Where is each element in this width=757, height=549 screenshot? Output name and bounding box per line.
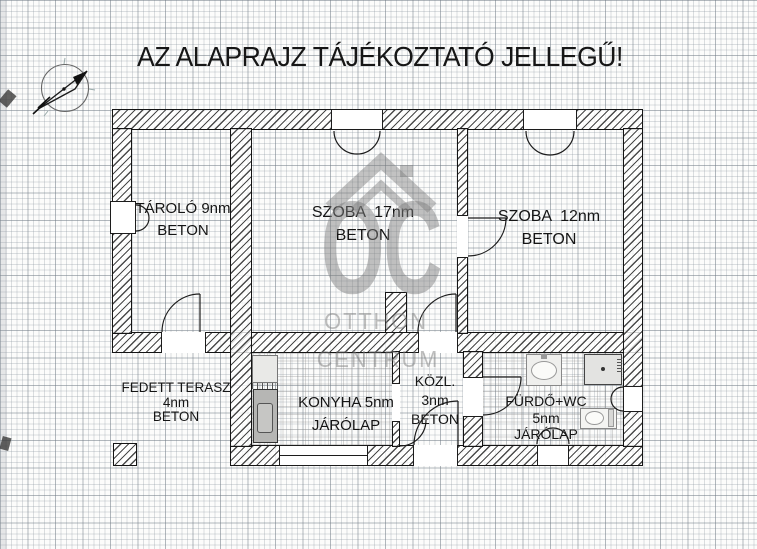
window-szoba12 bbox=[523, 109, 577, 130]
door-szoba12 bbox=[457, 215, 468, 258]
window-furdo-bottom bbox=[537, 445, 569, 466]
kitchen-counter bbox=[252, 355, 278, 383]
room-name: TÁROLÓ 9nm bbox=[135, 198, 230, 220]
room-floor: BETON bbox=[135, 220, 230, 242]
washbasin-bowl bbox=[531, 361, 557, 380]
door-szoba17-kozl bbox=[418, 332, 458, 353]
shower-drain bbox=[601, 367, 605, 371]
label-tarolo: TÁROLÓ 9nm BETON bbox=[135, 198, 230, 242]
window-furdo-right bbox=[623, 386, 643, 412]
page-title: AZ ALAPRAJZ TÁJÉKOZTATÓ JELLEGŰ! bbox=[137, 41, 623, 73]
room-name: SZOBA 12nm bbox=[498, 205, 600, 228]
kitchen-sink-bowl bbox=[257, 403, 273, 433]
watermark-otthon: OTTHON bbox=[324, 308, 428, 335]
chimney-block bbox=[385, 292, 407, 333]
room-name: KÖZL. bbox=[411, 372, 459, 391]
label-kozl: KÖZL. 3nm BETON bbox=[411, 372, 459, 429]
label-szoba17: SZOBA 17nm BETON bbox=[312, 201, 414, 247]
room-floor: BETON bbox=[411, 410, 459, 429]
window-szoba17 bbox=[331, 109, 383, 130]
room-name: FÜRDŐ+WC bbox=[505, 393, 586, 410]
washbasin-tap bbox=[541, 354, 547, 359]
terrace-post bbox=[113, 443, 137, 466]
label-szoba12: SZOBA 12nm BETON bbox=[498, 205, 600, 251]
room-area: 3nm bbox=[411, 391, 459, 410]
door-tarolo-terasz bbox=[161, 332, 206, 353]
shower-taps bbox=[617, 359, 622, 372]
wall-tarolo-konyha bbox=[230, 128, 252, 447]
label-konyha: KONYHA 5nm JÁRÓLAP bbox=[298, 391, 394, 437]
label-furdo: FÜRDŐ+WC 5nm JÁRÓLAP bbox=[505, 393, 586, 443]
room-floor: BETON bbox=[121, 410, 230, 425]
room-floor: BETON bbox=[498, 228, 600, 251]
door-entrance bbox=[413, 445, 458, 466]
room-floor: BETON bbox=[312, 224, 414, 247]
scan-mark bbox=[0, 436, 12, 451]
washbasin bbox=[526, 354, 562, 386]
floor-plan-page: AZ ALAPRAJZ TÁJÉKOZTATÓ JELLEGŰ! bbox=[0, 0, 757, 549]
room-area: 4nm bbox=[121, 396, 230, 411]
room-area: 5nm bbox=[505, 410, 586, 427]
room-name: SZOBA 17nm bbox=[312, 201, 414, 224]
label-terasz: FEDETT TERASZ 4nm BETON bbox=[121, 381, 230, 425]
scan-edge-shadow bbox=[0, 0, 7, 549]
room-floor: JÁRÓLAP bbox=[505, 426, 586, 443]
room-floor: JÁRÓLAP bbox=[298, 414, 394, 437]
toilet-bowl bbox=[585, 411, 604, 425]
north-arrow-icon bbox=[28, 50, 106, 128]
room-name: KONYHA 5nm bbox=[298, 391, 394, 414]
shower bbox=[584, 354, 622, 385]
kitchen-sink-unit bbox=[253, 389, 278, 443]
window-tarolo bbox=[110, 201, 136, 234]
toilet-tank bbox=[608, 409, 614, 427]
room-name: FEDETT TERASZ bbox=[121, 381, 230, 396]
door-kozl-furdo bbox=[463, 377, 483, 417]
window-konyha bbox=[279, 445, 368, 466]
